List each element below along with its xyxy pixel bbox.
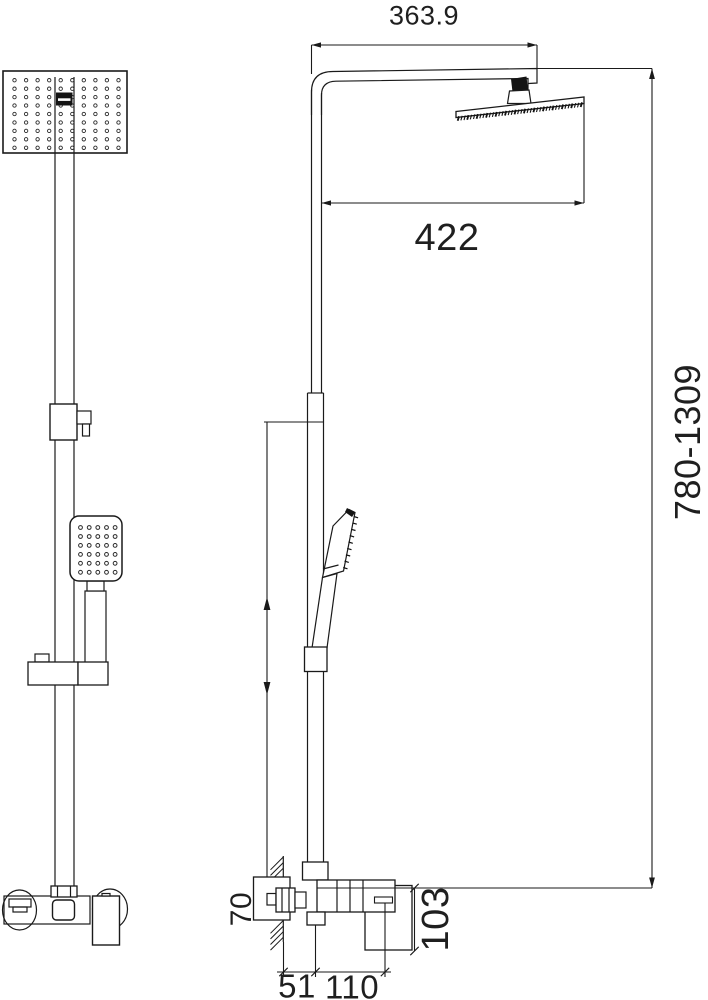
nozzle-dot [117, 146, 120, 149]
nozzle-tick [467, 115, 468, 120]
nozzle-dot [117, 138, 120, 141]
nozzle-dot [59, 138, 62, 141]
nozzle-tick [524, 109, 525, 114]
nozzle-dot [36, 95, 39, 98]
nozzle-dot [24, 138, 27, 141]
hatch-stroke [271, 857, 284, 870]
dimension-label-height-range: 780-1309 [670, 364, 706, 520]
nozzle-tick [562, 105, 563, 110]
nozzle-dot [13, 112, 16, 115]
spout-outlet [9, 899, 31, 907]
nozzle-dot [13, 129, 16, 132]
nozzle-dot [117, 79, 120, 82]
hatch-stroke [271, 937, 284, 950]
hatch-stroke [271, 863, 284, 876]
nozzle-dot [117, 104, 120, 107]
nozzle-dot [94, 87, 97, 90]
nozzle-dot [13, 87, 16, 90]
dimension-label-head-reach: 422 [415, 219, 480, 257]
nozzle-dot [48, 112, 51, 115]
nozzle-dot [82, 87, 85, 90]
shower-system-drawing [0, 0, 708, 1000]
hatch-stroke [271, 921, 284, 934]
nozzle-dot [59, 112, 62, 115]
nozzle-dot [24, 112, 27, 115]
nozzle-dot [48, 138, 51, 141]
nozzle-dot [82, 79, 85, 82]
nozzle-tick [458, 116, 459, 121]
nozzle-dot [24, 87, 27, 90]
nozzle-dot [59, 121, 62, 124]
nozzle-dot [94, 129, 97, 132]
nozzle-dot [59, 129, 62, 132]
nozzle-dot [82, 138, 85, 141]
nozzle-dot [36, 129, 39, 132]
nozzle-dot [59, 79, 62, 82]
nozzle-dot [117, 112, 120, 115]
hand-shower-holder-side [305, 647, 328, 672]
hatch-stroke [271, 932, 284, 945]
riser-pipe-side [308, 90, 324, 862]
nozzle-tick [477, 114, 478, 119]
nozzle-dot [24, 79, 27, 82]
nozzle-tick [505, 111, 506, 116]
nozzle-dot [13, 146, 16, 149]
nozzle-dot [48, 104, 51, 107]
mixer-front [3, 886, 128, 945]
diverter-tab-side [307, 912, 325, 925]
front-view [3, 71, 128, 945]
nozzle-dot [48, 129, 51, 132]
nozzle-tick [533, 108, 534, 113]
nozzle-dot [24, 121, 27, 124]
dimension-label-handle-offset: 110 [325, 971, 379, 1000]
nozzle-dot [13, 79, 16, 82]
nozzle-dot [105, 121, 108, 124]
technical-drawing-canvas: 363.9 422 780-1309 70 103 51 110 [0, 0, 708, 1000]
nozzle-dot [36, 121, 39, 124]
nozzle-dot [59, 87, 62, 90]
nozzle-dot [82, 112, 85, 115]
dim-height-range-lines [317, 69, 655, 889]
mixer-body-side [317, 880, 395, 912]
slider-clamp-front [50, 404, 91, 440]
nozzle-dot [117, 129, 120, 132]
nozzle-dot [59, 146, 62, 149]
nozzle-dot [117, 121, 120, 124]
nozzle-dot [48, 146, 51, 149]
nozzle-dot [13, 95, 16, 98]
nozzle-tick [543, 107, 544, 112]
nozzle-dot [94, 112, 97, 115]
mixer-body-front [4, 896, 90, 924]
nozzle-tick [486, 113, 487, 118]
nozzle-dot [48, 121, 51, 124]
nozzle-dot [105, 138, 108, 141]
nozzle-dot [24, 104, 27, 107]
pipe-nut-front [51, 886, 77, 897]
nozzle-dot [24, 129, 27, 132]
nozzle-dot [82, 95, 85, 98]
nozzle-dot [24, 146, 27, 149]
nozzle-dot [105, 79, 108, 82]
dimension-label-wall-plate-height: 70 [227, 892, 257, 926]
nozzle-tick [515, 110, 516, 115]
nozzle-dot [105, 104, 108, 107]
hand-shower-side [312, 508, 355, 648]
nozzle-dot [94, 79, 97, 82]
nozzle-dot [36, 79, 39, 82]
nozzle-dot [94, 95, 97, 98]
head-mount-bracket [508, 90, 532, 104]
nozzle-dot [117, 87, 120, 90]
side-view [254, 69, 585, 951]
nozzle-dot [105, 95, 108, 98]
nozzle-dot [94, 121, 97, 124]
nozzle-dot [36, 146, 39, 149]
nozzle-dot [105, 87, 108, 90]
riser-pipe-front [55, 77, 74, 886]
nozzle-dot [82, 104, 85, 107]
nozzle-dot [82, 121, 85, 124]
dim-head-reach-lines [322, 104, 585, 206]
nozzle-dot [105, 146, 108, 149]
nozzle-dot [24, 95, 27, 98]
nozzle-dot [13, 121, 16, 124]
connection-nut-side [276, 888, 295, 912]
hand-shower-handle-front [85, 591, 106, 663]
nozzle-dot [36, 87, 39, 90]
nozzle-dot [94, 138, 97, 141]
nozzle-tick [496, 112, 497, 117]
mixer-handle-front [93, 896, 120, 945]
head-inlet-connector [56, 93, 73, 106]
diverter-button [53, 900, 75, 920]
nozzle-dot [94, 104, 97, 107]
overhead-nozzle-dots [13, 79, 120, 150]
hand-shower-handle-side [312, 574, 337, 649]
nozzle-dot [48, 95, 51, 98]
mixer-side [254, 862, 413, 950]
nozzle-dot [82, 129, 85, 132]
nozzle-dot [82, 146, 85, 149]
nozzle-dot [117, 95, 120, 98]
dimension-label-mixer-height: 103 [417, 887, 455, 952]
nozzle-dot [36, 112, 39, 115]
nozzle-dot [13, 104, 16, 107]
nozzle-dot [48, 79, 51, 82]
pipe-mount-block [303, 862, 329, 880]
dimension-lines [264, 42, 655, 977]
hatch-stroke [271, 926, 284, 939]
nozzle-dot [94, 146, 97, 149]
nozzle-tick [581, 102, 582, 107]
nozzle-dot [48, 87, 51, 90]
nozzle-dot [13, 138, 16, 141]
nozzle-tick [571, 104, 572, 109]
nozzle-dot [105, 129, 108, 132]
nozzle-dot [36, 138, 39, 141]
nozzle-dot [105, 112, 108, 115]
dimension-label-arm-length: 363.9 [389, 3, 459, 30]
dimension-label-wall-offset: 51 [278, 970, 316, 1000]
nozzle-tick [552, 106, 553, 111]
nozzle-dot [36, 104, 39, 107]
